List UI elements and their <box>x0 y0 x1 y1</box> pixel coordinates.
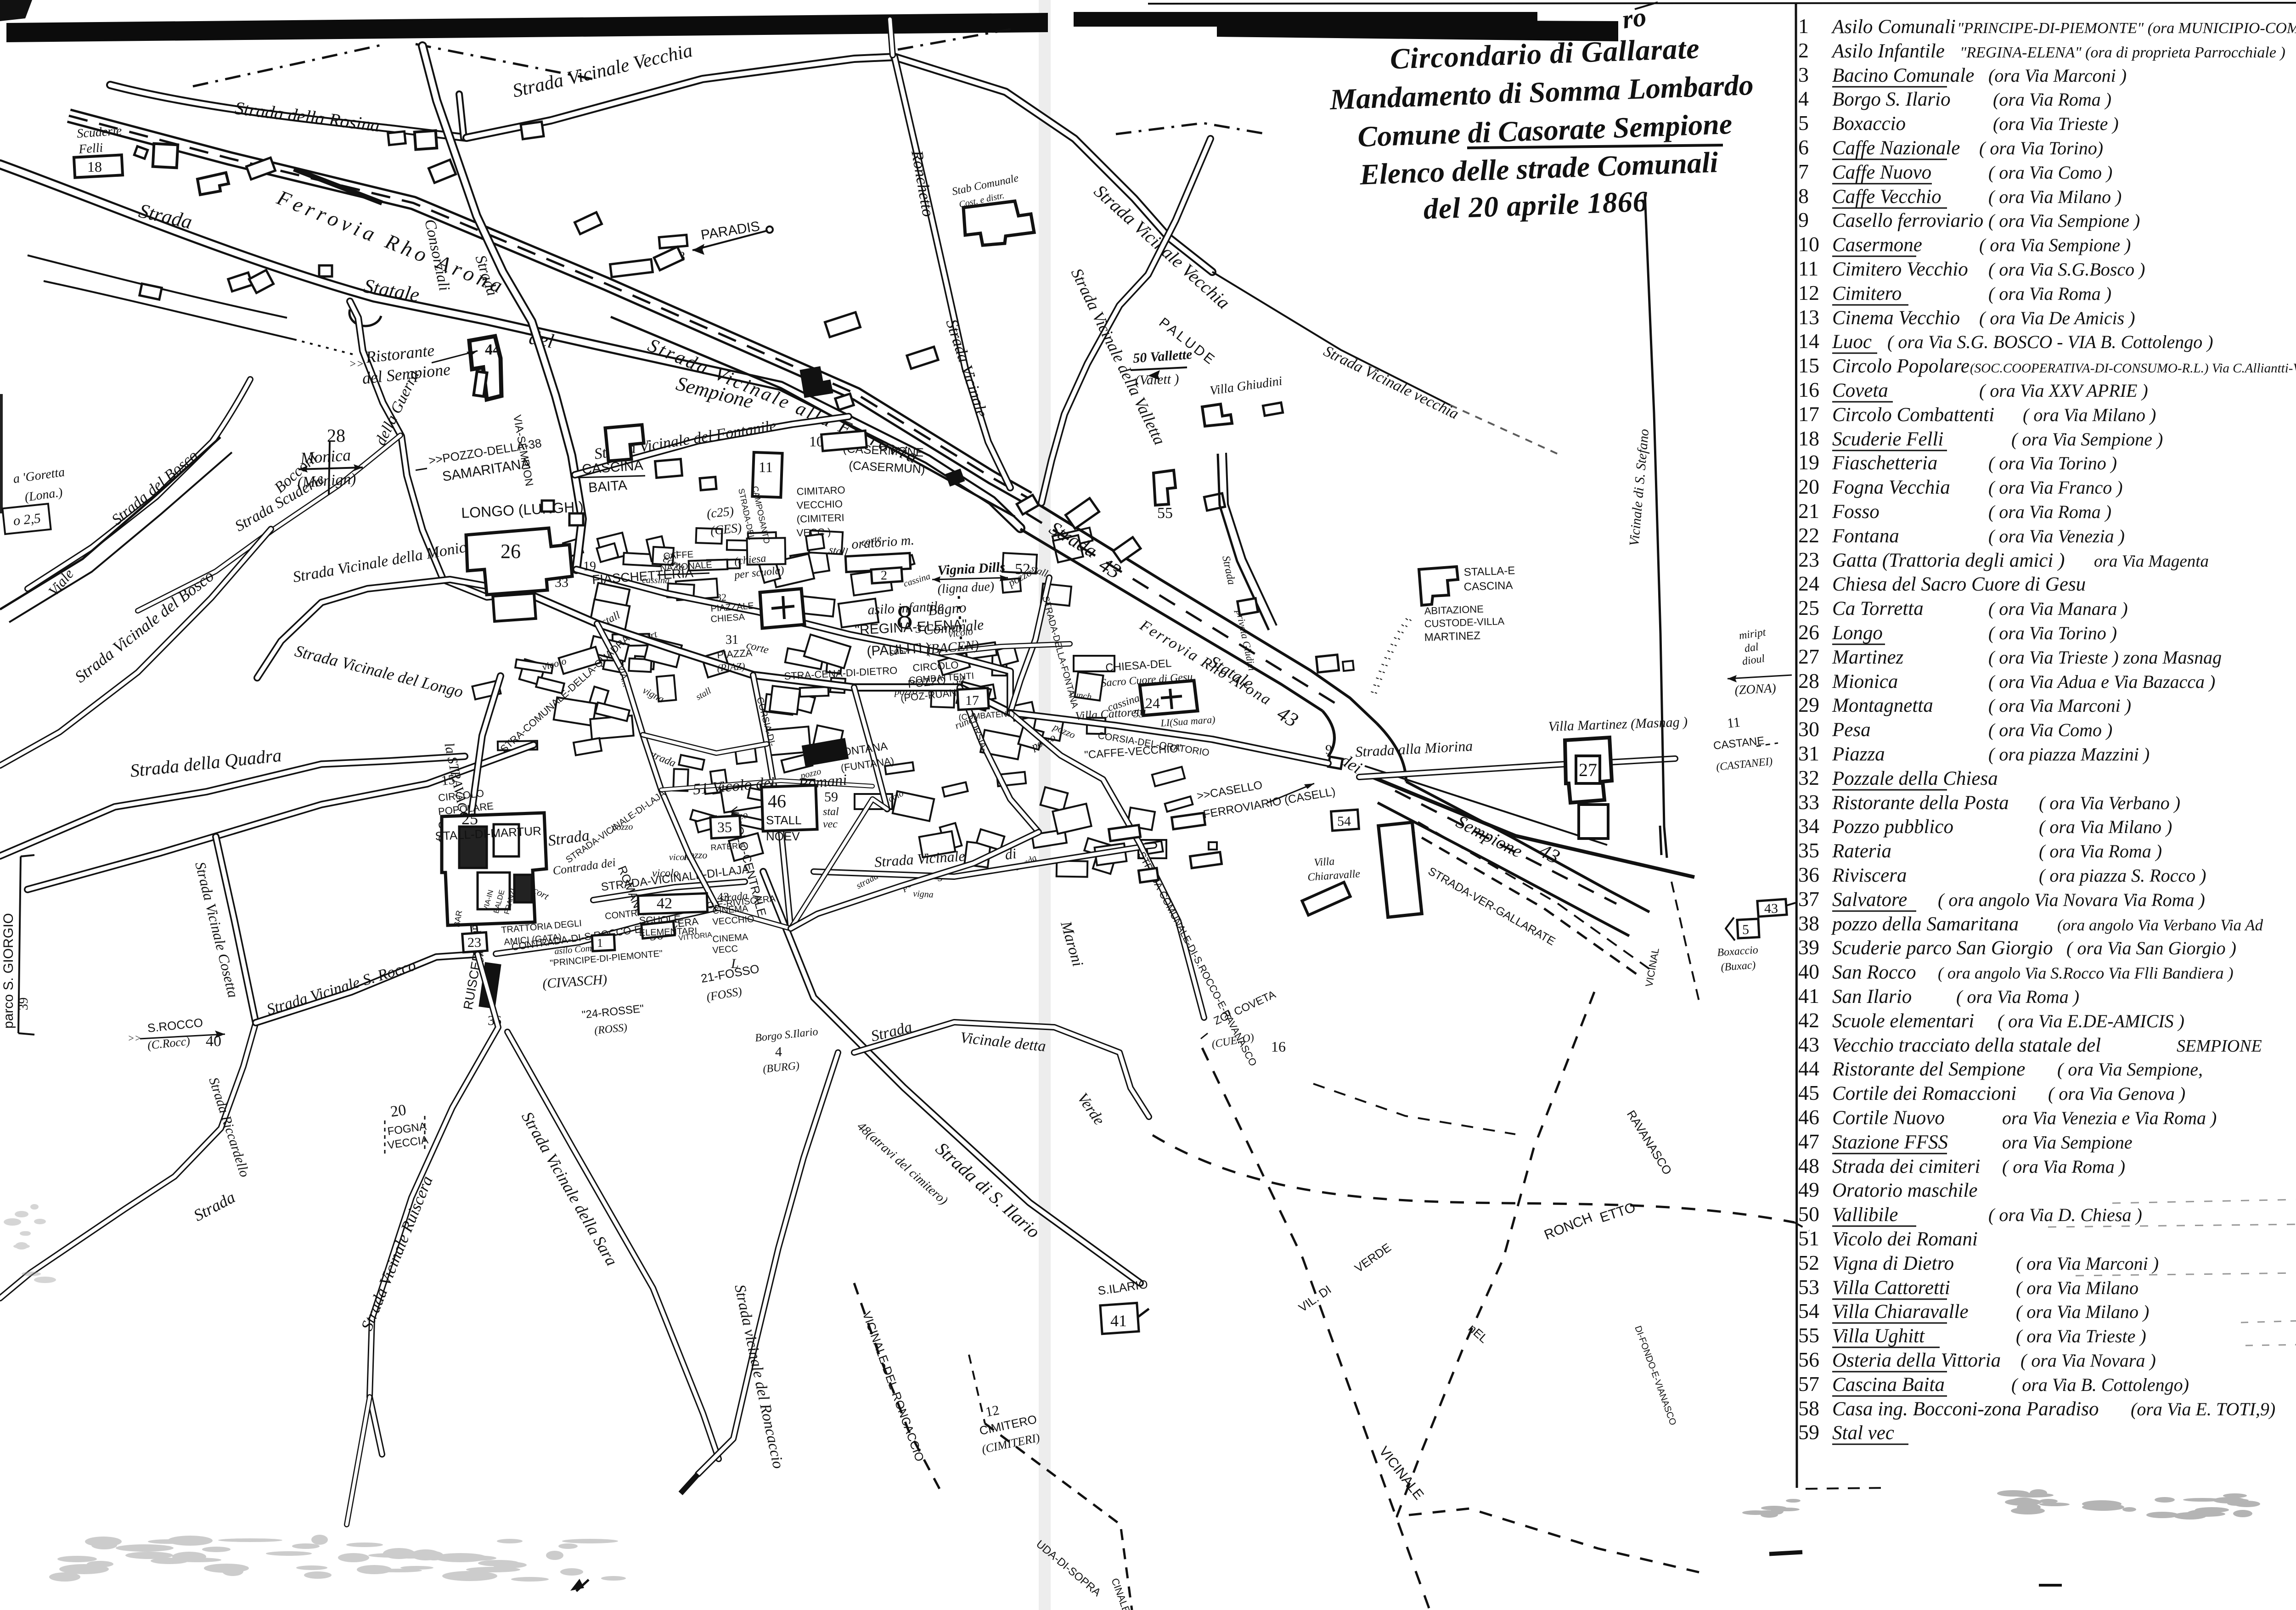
svg-text:Villa Martinez (Masnag ): Villa Martinez (Masnag ) <box>1548 714 1688 734</box>
svg-text:( ora Via De Amicis ): ( ora Via De Amicis ) <box>1979 308 2135 328</box>
svg-text:5: 5 <box>1742 922 1749 937</box>
svg-text:LONGO (LUNGH ): LONGO (LUNGH ) <box>461 498 584 521</box>
svg-text:Casa ing. Bocconi-zona Paradis: Casa ing. Bocconi-zona Paradiso <box>1832 1398 2099 1420</box>
svg-text:24: 24 <box>1145 695 1160 711</box>
svg-text:Strada Vicinale: Strada Vicinale <box>942 317 991 420</box>
svg-text:del 20 aprile 1866: del 20 aprile 1866 <box>1423 185 1649 225</box>
svg-text:miript: miript <box>1738 626 1767 642</box>
svg-text:Cortile Nuovo: Cortile Nuovo <box>1832 1107 1945 1129</box>
svg-text:CINEMA: CINEMA <box>712 932 749 945</box>
svg-text:VICINALE-DEL-RONCACCIO: VICINALE-DEL-RONCACCIO <box>860 1310 927 1464</box>
svg-text:( ora Via Roma ): ( ora Via Roma ) <box>1988 501 2111 522</box>
svg-text:ora Via Magenta: ora Via Magenta <box>2094 552 2209 571</box>
svg-text:( ora Via Roma ): ( ora Via Roma ) <box>2002 1156 2125 1177</box>
svg-text:Vallibile: Vallibile <box>1832 1204 1898 1226</box>
svg-text:(Buxac): (Buxac) <box>1721 959 1756 974</box>
svg-text:25: 25 <box>461 810 478 828</box>
svg-text:CASTANE: CASTANE <box>1713 734 1765 752</box>
svg-text:VECCHIO: VECCHIO <box>712 914 754 927</box>
svg-text:Villa Ghiudini: Villa Ghiudini <box>1209 374 1283 398</box>
svg-text:(Lona.): (Lona.) <box>24 485 64 505</box>
svg-text:19: 19 <box>583 559 596 574</box>
svg-text:Strada del Bosco: Strada del Bosco <box>108 447 201 529</box>
svg-text:NOEV: NOEV <box>766 829 800 843</box>
svg-text:( ora piazza Mazzini ): ( ora piazza Mazzini ) <box>1988 744 2150 765</box>
svg-text:21: 21 <box>1798 499 1819 523</box>
svg-text:(FOSS): (FOSS) <box>705 985 743 1004</box>
svg-text:11: 11 <box>759 459 773 475</box>
svg-text:Strada Vicinale del Longo: Strada Vicinale del Longo <box>293 642 465 701</box>
svg-text:57: 57 <box>1798 1372 1819 1396</box>
svg-text:58: 58 <box>1798 1396 1819 1420</box>
svg-text:parco S. GIORGIO: parco S. GIORGIO <box>1 913 16 1029</box>
svg-text:CHIESA: CHIESA <box>710 612 745 625</box>
svg-text:39: 39 <box>1798 935 1819 959</box>
svg-text:( ora Via Novara ): ( ora Via Novara ) <box>2020 1350 2156 1371</box>
svg-text:Vignia Dills: Vignia Dills <box>937 559 1006 578</box>
svg-text:Cimitero: Cimitero <box>1832 283 1902 304</box>
svg-text:Strada Vicinale S. Rocco: Strada Vicinale S. Rocco <box>265 957 418 1019</box>
svg-text:46: 46 <box>768 791 786 811</box>
svg-text:Contrada dei: Contrada dei <box>552 856 617 878</box>
svg-text:o 2,5: o 2,5 <box>12 511 41 529</box>
svg-text:8: 8 <box>1798 184 1809 208</box>
svg-text:Ristorante della Posta: Ristorante della Posta <box>1832 792 2009 814</box>
svg-text:Vicolo dei Romani: Vicolo dei Romani <box>1832 1228 1978 1250</box>
svg-text:4: 4 <box>1798 87 1809 110</box>
svg-text:( ora Via Trieste ): ( ora Via Trieste ) <box>2016 1326 2146 1346</box>
svg-text:STALL: STALL <box>766 813 802 827</box>
svg-text:20: 20 <box>1798 475 1819 498</box>
svg-text:3: 3 <box>1798 63 1809 86</box>
svg-text:"REGINA-ELENA" (ora di proprie: "REGINA-ELENA" (ora di proprieta Parrocc… <box>1960 44 2285 61</box>
svg-text:STRADA-VER-GALLARATE: STRADA-VER-GALLARATE <box>1426 865 1558 948</box>
svg-text:(CES): (CES) <box>709 521 742 538</box>
svg-text:(Monign): (Monign) <box>297 470 357 491</box>
svg-text:42: 42 <box>657 895 672 912</box>
svg-text:14: 14 <box>1798 329 1819 353</box>
svg-text:pozzo della Samaritana: pozzo della Samaritana <box>1831 913 2019 935</box>
svg-text:(ora Via Marconi ): (ora Via Marconi ) <box>1988 65 2127 86</box>
svg-text:( ora Via Franco ): ( ora Via Franco ) <box>1988 477 2123 498</box>
svg-text:23: 23 <box>467 935 481 950</box>
svg-text:ETTO: ETTO <box>1598 1200 1638 1226</box>
svg-text:17: 17 <box>965 693 979 708</box>
svg-text:VICINALE: VICINALE <box>1376 1444 1426 1503</box>
svg-text:Strada: Strada <box>191 1188 238 1225</box>
svg-text:31: 31 <box>726 633 738 647</box>
svg-text:Felli: Felli <box>78 141 103 157</box>
svg-text:12: 12 <box>1798 281 1819 304</box>
svg-text:44: 44 <box>485 341 501 358</box>
svg-text:54: 54 <box>1337 814 1351 829</box>
svg-text:Longo: Longo <box>1832 622 1883 644</box>
svg-text:( ora Via Milano ): ( ora Via Milano ) <box>2023 405 2156 425</box>
svg-text:(PAULITI ): (PAULITI ) <box>867 641 931 659</box>
svg-text:>>: >> <box>128 1032 141 1044</box>
svg-text:RAVANASCO: RAVANASCO <box>1624 1108 1675 1177</box>
svg-text:48(atravi del cimitero): 48(atravi del cimitero) <box>854 1119 951 1208</box>
svg-text:RONCH: RONCH <box>1542 1210 1594 1243</box>
svg-text:( ora Via San Giorgio ): ( ora Via San Giorgio ) <box>2066 938 2236 958</box>
svg-text:stall: stall <box>694 686 713 702</box>
svg-text:26: 26 <box>501 540 521 563</box>
svg-text:41: 41 <box>1110 1312 1127 1330</box>
svg-text:Borgo S.Ilario: Borgo S.Ilario <box>754 1026 819 1044</box>
svg-text:47: 47 <box>1798 1130 1819 1153</box>
svg-text:Caffe Vecchio: Caffe Vecchio <box>1832 186 1941 208</box>
svg-text:( ora Via Adua e Via Bazacca ): ( ora Via Adua e Via Bazacca ) <box>1988 671 2215 692</box>
svg-text:Cinema Vecchio: Cinema Vecchio <box>1832 307 1960 329</box>
svg-text:21-FOSSO: 21-FOSSO <box>700 962 760 985</box>
svg-text:( ora Via E.DE-AMICIS ): ( ora Via E.DE-AMICIS ) <box>1998 1011 2184 1031</box>
svg-text:stal: stal <box>823 806 839 818</box>
svg-text:( ora Via Milano ): ( ora Via Milano ) <box>2039 816 2172 837</box>
svg-text:Piazza: Piazza <box>1832 743 1885 765</box>
svg-text:Caffe Nuovo: Caffe Nuovo <box>1832 162 1931 183</box>
svg-text:CINALE-DI-: CINALE-DI- <box>1109 1576 1138 1610</box>
svg-text:VIL. DI: VIL. DI <box>1296 1283 1334 1315</box>
svg-text:CIMITARO: CIMITARO <box>796 484 845 497</box>
svg-text:Strada Vicinale Ruiscera: Strada Vicinale Ruiscera <box>357 1173 436 1333</box>
svg-text:( ora angolo Via S.Rocco Via F: ( ora angolo Via S.Rocco Via Flli Bandie… <box>1938 964 2234 982</box>
svg-text:Martinez: Martinez <box>1832 647 1904 668</box>
svg-text:( ora Via D. Chiesa ): ( ora Via D. Chiesa ) <box>1988 1205 2142 1225</box>
svg-text:a 'Goretta: a 'Goretta <box>12 465 66 486</box>
svg-text:31: 31 <box>1798 742 1819 765</box>
svg-text:42: 42 <box>1798 1008 1819 1032</box>
svg-text:( ora Via Venezia ): ( ora Via Venezia ) <box>1988 526 2125 546</box>
svg-text:32: 32 <box>716 591 726 603</box>
svg-text:52: 52 <box>1015 561 1030 578</box>
svg-text:( ora Via Roma ): ( ora Via Roma ) <box>1956 986 2079 1007</box>
svg-text:Strada Vicinale della Sara: Strada Vicinale della Sara <box>518 1109 621 1269</box>
svg-text:43: 43 <box>717 890 729 904</box>
svg-text:Pozzo pubblico: Pozzo pubblico <box>1832 816 1953 838</box>
svg-text:( ora Via Genova ): ( ora Via Genova ) <box>2048 1083 2185 1104</box>
svg-text:36: 36 <box>1798 863 1819 886</box>
svg-text:13: 13 <box>1798 305 1819 329</box>
svg-text:Vicinale detta: Vicinale detta <box>959 1029 1047 1055</box>
svg-text:(CIMITERI: (CIMITERI <box>796 512 844 525</box>
svg-text:( ora Via Milano ): ( ora Via Milano ) <box>2016 1301 2149 1322</box>
svg-text:( ora Via Verbano ): ( ora Via Verbano ) <box>2039 793 2180 813</box>
svg-text:43: 43 <box>1764 901 1778 916</box>
svg-text:Pozzale della Chiesa: Pozzale della Chiesa <box>1832 768 1998 789</box>
svg-text:CIRCOLO: CIRCOLO <box>438 788 484 804</box>
svg-text:"PRINCIPE-DI-PIEMONTE" (ora MU: "PRINCIPE-DI-PIEMONTE" (ora MUNICIPIO-CO… <box>1957 20 2296 37</box>
svg-text:48: 48 <box>1798 1154 1819 1177</box>
svg-text:( ora Via Marconi ): ( ora Via Marconi ) <box>1988 695 2131 716</box>
svg-text:Scuole elementari: Scuole elementari <box>1832 1010 1974 1032</box>
svg-text:ABITAZIONE: ABITAZIONE <box>1424 603 1484 617</box>
svg-text:17: 17 <box>1798 402 1819 426</box>
svg-text:Cimitero Vecchio: Cimitero Vecchio <box>1832 259 1968 280</box>
svg-text:Oratorio maschile: Oratorio maschile <box>1832 1180 1978 1201</box>
svg-text:Cascina Baita: Cascina Baita <box>1832 1374 1945 1396</box>
svg-text:Scuderie: Scuderie <box>76 124 122 141</box>
svg-text:16: 16 <box>1271 1038 1286 1055</box>
svg-text:( ora Via Como ): ( ora Via Como ) <box>1988 720 2112 740</box>
svg-text:50: 50 <box>1798 1202 1819 1226</box>
svg-text:Chiaravalle: Chiaravalle <box>1307 868 1361 884</box>
svg-text:Pesa: Pesa <box>1832 719 1871 741</box>
svg-text:(ora angolo Via Verbano Via Ad: (ora angolo Via Verbano Via Ad <box>2057 916 2263 934</box>
svg-text:LI(Sua mara): LI(Sua mara) <box>1160 714 1216 729</box>
svg-text:Villa Ughitt: Villa Ughitt <box>1832 1325 1925 1347</box>
svg-text:Villa: Villa <box>1314 856 1335 869</box>
svg-text:34: 34 <box>1798 814 1819 838</box>
svg-text:Circolo Combattenti: Circolo Combattenti <box>1832 404 1994 426</box>
svg-text:29: 29 <box>1798 693 1819 716</box>
svg-text:Scuderie parco San Giorgio: Scuderie parco San Giorgio <box>1832 937 2053 959</box>
svg-text:( ora Via S.G.Bosco ): ( ora Via S.G.Bosco ) <box>1988 259 2145 280</box>
svg-text:Cortile dei Romaccioni: Cortile dei Romaccioni <box>1832 1083 2016 1104</box>
svg-text:Stal vec: Stal vec <box>1832 1422 1894 1444</box>
svg-text:Fogna Vecchia: Fogna Vecchia <box>1832 477 1950 498</box>
svg-text:Coveta: Coveta <box>1832 380 1888 401</box>
svg-text:San Rocco: San Rocco <box>1832 962 1916 983</box>
svg-text:COVETA: COVETA <box>1232 988 1277 1018</box>
svg-text:56: 56 <box>1798 1348 1819 1371</box>
svg-text:22: 22 <box>1798 524 1819 547</box>
svg-text:Strada vicinale del Roncacc: Strada vicinale del Roncaccio <box>731 1283 787 1470</box>
svg-text:9: 9 <box>1798 208 1809 231</box>
svg-text:Monica: Monica <box>299 445 351 467</box>
svg-text:52: 52 <box>1798 1251 1819 1274</box>
svg-text:ora Via Venezia e Via Roma ): ora Via Venezia e Via Roma ) <box>2002 1108 2217 1128</box>
svg-text:(BURG): (BURG) <box>762 1060 800 1075</box>
svg-text:9: 9 <box>1325 742 1332 757</box>
svg-text:"24-ROSSE": "24-ROSSE" <box>581 1002 645 1021</box>
svg-text:33: 33 <box>555 575 568 590</box>
svg-text:40: 40 <box>1798 960 1819 983</box>
svg-text:( ora Via Sempione ): ( ora Via Sempione ) <box>1979 235 2131 255</box>
svg-text:8: 8 <box>896 599 913 636</box>
svg-text:Luoc: Luoc <box>1832 331 1872 353</box>
svg-text:oratorio m.: oratorio m. <box>851 533 915 552</box>
svg-text:6: 6 <box>1798 135 1809 159</box>
svg-text:Strada Vicinale vecchia: Strada Vicinale vecchia <box>1321 343 1461 423</box>
svg-text:Scuderie Felli: Scuderie Felli <box>1832 428 1943 450</box>
svg-text:S.ROCCO: S.ROCCO <box>146 1015 203 1035</box>
svg-text:BAITA: BAITA <box>588 478 628 495</box>
svg-text:nEL: nEL <box>1466 1321 1491 1345</box>
svg-text:(ora Via E. TOTI,9): (ora Via E. TOTI,9) <box>2131 1399 2275 1419</box>
svg-text:28: 28 <box>1798 669 1819 692</box>
svg-text:18: 18 <box>1798 427 1819 450</box>
svg-text:vigna: vigna <box>913 889 934 900</box>
svg-text:Strada della Rosina: Strada della Rosina <box>234 97 381 135</box>
svg-text:30: 30 <box>1798 717 1819 741</box>
svg-text:Mionica: Mionica <box>1832 671 1898 692</box>
svg-text:SCUOLE: SCUOLE <box>639 913 681 926</box>
svg-text:privata Giudici: privata Giudici <box>1234 608 1258 672</box>
svg-text:SEMPIONE: SEMPIONE <box>2177 1036 2262 1056</box>
svg-text:Ronchetto: Ronchetto <box>908 148 938 218</box>
svg-text:Vigna di Dietro: Vigna di Dietro <box>1832 1253 1954 1274</box>
svg-text:15: 15 <box>440 772 456 788</box>
svg-text:Fosso: Fosso <box>1832 501 1880 523</box>
svg-text:Villa Chiaravalle: Villa Chiaravalle <box>1832 1301 1969 1323</box>
svg-text:2: 2 <box>1798 39 1809 62</box>
svg-text:( ora Via Manara ): ( ora Via Manara ) <box>1988 598 2128 619</box>
svg-text:Bacino Comunale: Bacino Comunale <box>1832 65 1974 86</box>
svg-text:CASCINA: CASCINA <box>1463 579 1513 593</box>
svg-text:38: 38 <box>1798 912 1819 935</box>
svg-text:(CASTANEI): (CASTANEI) <box>1716 755 1773 773</box>
svg-text:(ROSS): (ROSS) <box>594 1022 628 1037</box>
svg-text:San Ilario: San Ilario <box>1832 986 1912 1008</box>
svg-text:Chiesa del Sacro Cuore di Gesu: Chiesa del Sacro Cuore di Gesu <box>1832 574 2086 595</box>
svg-text:(CIVASCH): (CIVASCH) <box>542 972 608 991</box>
svg-text:Strada alla Miorina: Strada alla Miorina <box>1355 737 1473 760</box>
svg-text:( ora Via Como ): ( ora Via Como ) <box>1988 162 2112 183</box>
svg-text:Fiaschetteria: Fiaschetteria <box>1832 452 1937 474</box>
svg-text:( ora Via Milano: ( ora Via Milano <box>2016 1278 2138 1298</box>
svg-text:( ora Via S.G. BOSCO - VIA B.: ( ora Via S.G. BOSCO - VIA B. Cottolengo… <box>1887 332 2213 352</box>
svg-text:Riviscera: Riviscera <box>1832 865 1907 886</box>
svg-text:Vicinale di S. Stefano: Vicinale di S. Stefano <box>1626 428 1652 547</box>
svg-text:PARADIS: PARADIS <box>700 219 761 243</box>
svg-text:(c25): (c25) <box>706 504 734 521</box>
svg-text:10: 10 <box>1798 232 1819 256</box>
svg-text:23: 23 <box>1798 548 1819 571</box>
svg-text:55: 55 <box>1157 505 1173 522</box>
svg-text:VERDE: VERDE <box>1352 1240 1394 1275</box>
svg-text:( ora Via Sempione,: ( ora Via Sempione, <box>2057 1059 2203 1080</box>
svg-text:( ora Via Torino ): ( ora Via Torino ) <box>1988 453 2117 473</box>
svg-text:( ora Via Roma ): ( ora Via Roma ) <box>2039 841 2162 861</box>
svg-text:Verde: Verde <box>1074 1090 1108 1128</box>
svg-text:Montagnetta: Montagnetta <box>1832 695 1933 716</box>
svg-text:45: 45 <box>1798 1081 1819 1104</box>
svg-text:Osteria della Vittoria: Osteria della Vittoria <box>1832 1350 2001 1371</box>
svg-text:18: 18 <box>87 158 102 175</box>
svg-text:Stazione FFSS: Stazione FFSS <box>1832 1132 1948 1153</box>
svg-text:Gatta (Trattoria degli amici ): Gatta (Trattoria degli amici ) <box>1832 550 2065 571</box>
svg-text:Bagno: Bagno <box>927 599 967 619</box>
svg-text:54: 54 <box>1798 1299 1819 1323</box>
svg-text:ELEMENTARI: ELEMENTARI <box>639 926 697 938</box>
svg-text:CUSTODE-VILLA: CUSTODE-VILLA <box>1424 615 1505 630</box>
svg-text:>>: >> <box>349 358 364 370</box>
svg-text:11: 11 <box>1726 715 1741 731</box>
svg-text:20: 20 <box>389 1102 407 1120</box>
svg-text:MARTINEZ: MARTINEZ <box>1424 630 1480 644</box>
svg-text:Villa Cattoretti: Villa Cattoretti <box>1832 1277 1950 1299</box>
svg-text:cassina: cassina <box>902 571 932 589</box>
svg-text:S.ILARIO: S.ILARIO <box>1097 1277 1149 1298</box>
svg-text:Borgo S. Ilario: Borgo S. Ilario <box>1832 89 1951 110</box>
svg-text:( ora Via Sempione ): ( ora Via Sempione ) <box>2011 429 2163 450</box>
svg-text:25: 25 <box>1798 596 1819 619</box>
svg-text:37: 37 <box>1798 887 1819 911</box>
svg-text:Asilo Infantile: Asilo Infantile <box>1831 40 1945 62</box>
svg-text:Boxaccio: Boxaccio <box>1717 944 1759 959</box>
svg-text:( ora Via Sempione ): ( ora Via Sempione ) <box>1988 210 2140 231</box>
svg-text:VECCHIO: VECCHIO <box>796 498 843 511</box>
svg-text:( ora Via Trieste ) zona Masna: ( ora Via Trieste ) zona Masnag <box>1988 647 2222 668</box>
svg-text:43: 43 <box>1798 1033 1819 1056</box>
svg-text:33: 33 <box>1798 790 1819 814</box>
svg-text:32: 32 <box>1798 766 1819 789</box>
svg-text:( ora angolo Via Novara Via Ro: ( ora angolo Via Novara Via Roma ) <box>1938 889 2205 910</box>
svg-text:1: 1 <box>1798 14 1809 38</box>
svg-text:VECC: VECC <box>712 944 738 956</box>
svg-text:35: 35 <box>717 819 732 835</box>
svg-text:Casello ferroviario: Casello ferroviario <box>1832 210 1983 231</box>
svg-text:STALLA-E: STALLA-E <box>1463 564 1515 579</box>
svg-text:VECC ): VECC ) <box>796 526 831 539</box>
svg-text:16: 16 <box>1798 378 1819 401</box>
svg-text:35: 35 <box>1798 839 1819 862</box>
svg-text:27: 27 <box>1798 645 1819 668</box>
svg-text:STRADA-VICINALE-DI-LAJA: STRADA-VICINALE-DI-LAJA <box>564 788 668 866</box>
svg-text:11: 11 <box>1798 257 1818 280</box>
svg-text:24: 24 <box>1798 572 1819 595</box>
svg-text:26: 26 <box>1798 620 1819 644</box>
svg-text:50 Vallette: 50 Vallette <box>1132 347 1193 366</box>
svg-text:59: 59 <box>1798 1420 1819 1444</box>
svg-text:Strada dei cimiteri: Strada dei cimiteri <box>1832 1156 1980 1177</box>
svg-text:41: 41 <box>1798 984 1819 1008</box>
svg-text:Maroni: Maroni <box>1057 919 1086 968</box>
svg-text:( ora Via XXV APRIE ): ( ora Via XXV APRIE ) <box>1979 380 2148 401</box>
svg-text:Strada Riccardello: Strada Riccardello <box>206 1075 252 1179</box>
svg-text:( ora Via Marconi ): ( ora Via Marconi ) <box>2016 1253 2159 1274</box>
svg-text:dal: dal <box>1744 641 1759 655</box>
svg-text:Asilo Comunali: Asilo Comunali <box>1831 16 1956 38</box>
svg-text:1: 1 <box>597 936 603 950</box>
svg-text:Circolo Popolare: Circolo Popolare <box>1832 355 1970 377</box>
svg-text:(ora Via Trieste ): (ora Via Trieste ) <box>1993 113 2119 134</box>
svg-text:55: 55 <box>1798 1323 1819 1347</box>
svg-text:PIAZZA: PIAZZA <box>717 647 753 661</box>
svg-text:( ora piazza S. Rocco ): ( ora piazza S. Rocco ) <box>2039 865 2206 886</box>
svg-text:Casermone: Casermone <box>1832 234 1922 256</box>
svg-text:51: 51 <box>1798 1227 1819 1250</box>
svg-text:Rateria: Rateria <box>1832 840 1891 862</box>
svg-text:Ristorante del Sempione: Ristorante del Sempione <box>1832 1058 2025 1080</box>
svg-text:dioul: dioul <box>1741 653 1766 668</box>
svg-text:(ora Via Roma ): (ora Via Roma ) <box>1993 89 2111 110</box>
svg-text:19: 19 <box>1798 450 1819 474</box>
svg-text:( ora Via Torino ): ( ora Via Torino ) <box>1988 623 2117 643</box>
svg-text:4: 4 <box>775 1044 782 1059</box>
svg-text:44: 44 <box>1798 1057 1819 1080</box>
svg-text:53: 53 <box>1133 708 1144 720</box>
svg-text:CAFFE: CAFFE <box>663 549 694 562</box>
svg-text:ora Via Sempione: ora Via Sempione <box>2002 1132 2133 1153</box>
svg-text:Caffe Nazionale: Caffe Nazionale <box>1832 137 1960 159</box>
svg-text:vec: vec <box>823 818 838 830</box>
svg-text:( ora Via Milano ): ( ora Via Milano ) <box>1988 186 2122 207</box>
svg-text:59: 59 <box>824 789 838 805</box>
svg-text:Viale: Viale <box>45 565 77 599</box>
svg-text:7: 7 <box>1798 160 1809 183</box>
svg-text:(SOC.COOPERATIVA-DI-CONSUMO-R.: (SOC.COOPERATIVA-DI-CONSUMO-R.L.) Via C.… <box>1970 361 2296 376</box>
svg-text:( ora Via Roma ): ( ora Via Roma ) <box>1988 283 2111 304</box>
svg-text:46: 46 <box>1798 1105 1819 1129</box>
svg-text:49: 49 <box>1798 1178 1819 1201</box>
svg-text:3: 3 <box>915 622 922 636</box>
svg-text:Vecchio tracciato della statal: Vecchio tracciato della statale del <box>1832 1035 2101 1056</box>
svg-text:( ora Via Torino): ( ora Via Torino) <box>1979 138 2103 158</box>
svg-text:Boxaccio: Boxaccio <box>1832 113 1906 135</box>
svg-text:(ZONA): (ZONA) <box>1734 681 1777 698</box>
svg-text:(ligna due): (ligna due) <box>937 580 995 597</box>
